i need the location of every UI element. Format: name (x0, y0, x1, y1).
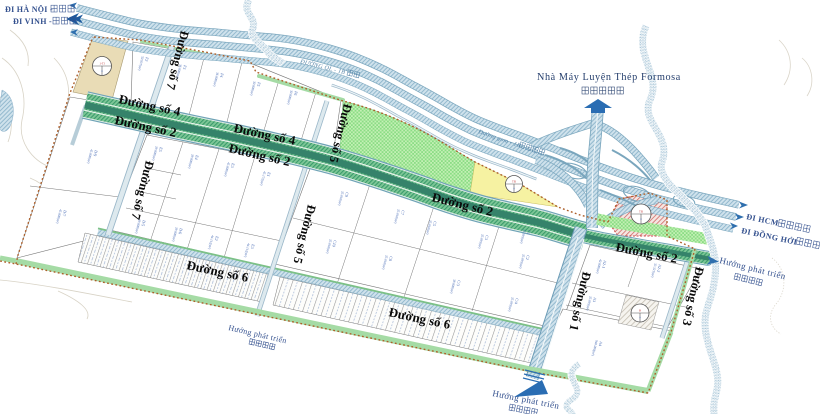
svg-text:1-TI: 1-TI (99, 62, 104, 66)
svg-text:B: B (639, 309, 641, 313)
svg-text:ĐI HÀ NỘI -: ĐI HÀ NỘI - (5, 4, 53, 14)
svg-text:Nhà Máy Luyện Thép Formosa: Nhà Máy Luyện Thép Formosa (537, 72, 681, 83)
svg-text:ĐI VINH -: ĐI VINH - (13, 17, 52, 26)
